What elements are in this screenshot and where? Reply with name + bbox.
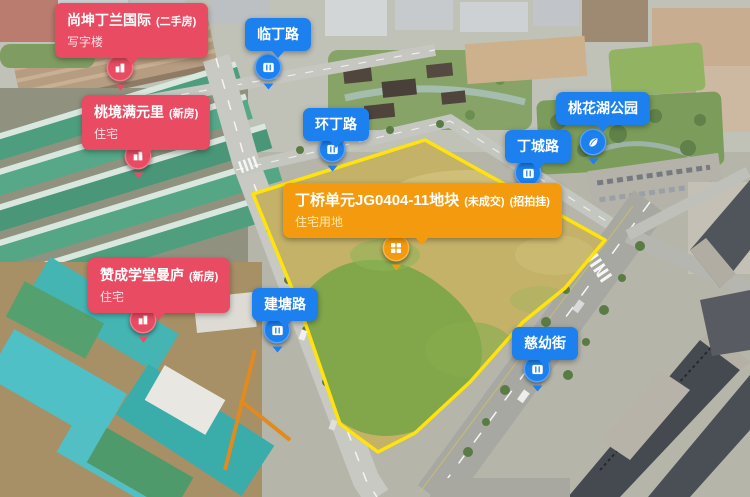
property-tag: (二手房): [156, 16, 196, 28]
map-canvas[interactable]: 尚坤丁兰国际(二手房) 写字楼 桃境满元里(新房) 住宅 赞成学堂曼庐(新房) …: [0, 0, 750, 497]
road-label-dingchenglu[interactable]: 丁城路: [505, 130, 571, 163]
parcel-sale-tag: (招拍挂): [510, 196, 550, 208]
parcel-label[interactable]: 丁桥单元JG0404-11地块(未成交)(招拍挂) 住宅用地: [283, 183, 562, 238]
property-type: 写字楼: [67, 35, 196, 49]
road-label-ciyoujie[interactable]: 慈幼街: [512, 327, 578, 360]
road-name: 环丁路: [315, 116, 357, 132]
property-name: 尚坤丁兰国际: [67, 12, 151, 28]
road-name: 丁城路: [517, 138, 559, 154]
property-label-zancheng[interactable]: 赞成学堂曼庐(新房) 住宅: [88, 258, 230, 313]
leaf-icon: [586, 135, 600, 149]
parcel-land-use: 住宅用地: [295, 215, 550, 229]
property-name: 赞成学堂曼庐: [100, 267, 184, 283]
window-grid-icon: [389, 241, 404, 256]
road-label-huandinglu[interactable]: 环丁路: [303, 108, 369, 141]
property-label-taojing[interactable]: 桃境满元里(新房) 住宅: [82, 95, 210, 150]
property-tag: (新房): [169, 108, 198, 120]
park-pin-taohuahu[interactable]: [580, 129, 607, 156]
property-label-shangkun[interactable]: 尚坤丁兰国际(二手房) 写字楼: [55, 3, 208, 58]
property-tag: (新房): [189, 271, 218, 283]
building-icon: [137, 314, 150, 327]
road-label-jiantanglu[interactable]: 建塘路: [252, 288, 318, 321]
property-type: 住宅: [100, 290, 218, 304]
park-label-taohuahu[interactable]: 桃花湖公园: [556, 92, 650, 125]
property-type: 住宅: [94, 127, 198, 141]
parcel-pin[interactable]: [383, 235, 410, 262]
road-icon: [261, 60, 275, 74]
road-label-lindinglu[interactable]: 临丁路: [245, 18, 311, 51]
road-name: 临丁路: [257, 26, 299, 42]
road-name: 建塘路: [264, 296, 306, 312]
road-name: 慈幼街: [524, 335, 566, 351]
parcel-status-tag: (未成交): [464, 196, 504, 208]
parcel-title: 丁桥单元JG0404-11地块: [295, 192, 459, 209]
park-name: 桃花湖公园: [568, 100, 638, 116]
property-name: 桃境满元里: [94, 104, 164, 120]
